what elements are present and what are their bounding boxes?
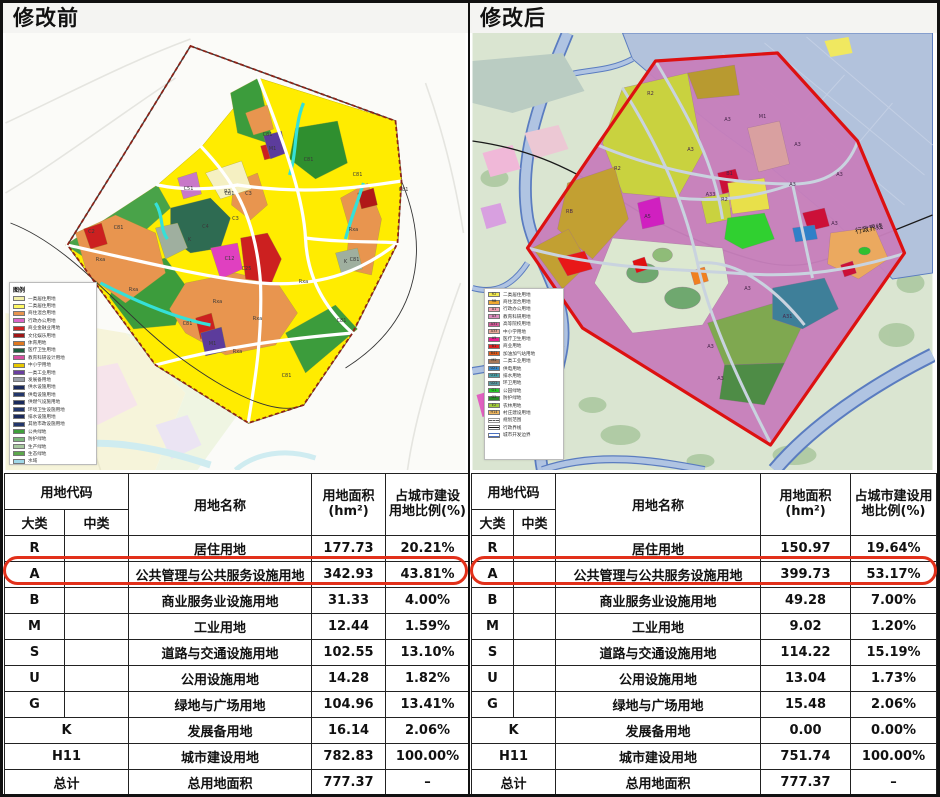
table-row: B商业服务业设施用地49.287.00% xyxy=(472,588,937,614)
cell-major: S xyxy=(472,640,514,666)
cell-name: 商业服务业设施用地 xyxy=(129,588,312,614)
legend-swatch: B1 xyxy=(488,344,500,349)
cell-ratio: 4.00% xyxy=(386,588,470,614)
cell-ratio: 1.59% xyxy=(386,614,470,640)
table-row: R居住用地177.7320.21% xyxy=(5,536,470,562)
table-row: G绿地与广场用地15.482.06% xyxy=(472,692,937,718)
legend-swatch: H14 xyxy=(488,410,500,415)
parcel-label: C81 xyxy=(183,321,193,327)
legend-item: 环境卫生设施用地 xyxy=(13,406,93,413)
cell-major: M xyxy=(472,614,514,640)
cell-area: 751.74 xyxy=(761,744,851,770)
legend-item: 供电设施用地 xyxy=(13,391,93,398)
cell-code: 总计 xyxy=(5,770,129,795)
cell-ratio: 15.19% xyxy=(851,640,937,666)
parcel-label: C2 xyxy=(88,229,95,235)
cell-minor xyxy=(514,562,556,588)
cell-code: K xyxy=(472,718,556,744)
parcel-label: C81 xyxy=(399,187,409,193)
cell-minor xyxy=(65,614,129,640)
legend-swatch: A5 xyxy=(488,337,500,342)
legend-label: 二类工业用地 xyxy=(503,358,531,364)
before-landuse-table: 用地代码 用地名称 用地面积 (hm²) 占城市建设 用地比例(%) 大类 中类… xyxy=(4,473,470,794)
legend-label: 发展备用地 xyxy=(28,377,51,383)
legend-label: 一类居住用地 xyxy=(28,296,56,302)
legend-item: A1行政办公用地 xyxy=(488,306,560,313)
parcel-label: A31 xyxy=(783,314,793,320)
legend-item: 水域 xyxy=(13,458,93,465)
col-header-major: 大类 xyxy=(472,510,514,536)
legend-item: A3教育科研用地 xyxy=(488,313,560,320)
legend-swatch xyxy=(13,385,25,390)
table-row: M工业用地9.021.20% xyxy=(472,614,937,640)
legend-swatch xyxy=(13,400,25,405)
cell-name: 公共管理与公共服务设施用地 xyxy=(129,562,312,588)
cell-major: R xyxy=(472,536,514,562)
cell-minor xyxy=(65,692,129,718)
legend-label: 行政界线 xyxy=(503,425,521,431)
parcel-label: B1 xyxy=(726,171,733,177)
legend-swatch xyxy=(13,304,25,309)
cell-ratio: 2.06% xyxy=(386,718,470,744)
cell-major: A xyxy=(5,562,65,588)
cell-ratio: 0.00% xyxy=(851,718,937,744)
after-landuse-table-wrap: 用地代码 用地名称 用地面积(hm²) 占城市建设用 地比例(%) 大类 中类 … xyxy=(471,473,936,794)
col-header-area: 用地面积(hm²) xyxy=(761,474,851,536)
table-row: H11城市建设用地751.74100.00% xyxy=(472,744,937,770)
parcel-label: R2 xyxy=(647,91,654,97)
parcel-label: C81 xyxy=(337,318,347,324)
cell-area: 777.37 xyxy=(761,770,851,795)
cell-area: 114.22 xyxy=(761,640,851,666)
cell-name: 工业用地 xyxy=(556,614,761,640)
parcel-label: RB xyxy=(566,209,573,215)
legend-swatch: RB xyxy=(488,300,500,305)
cell-ratio: 1.20% xyxy=(851,614,937,640)
cell-major: S xyxy=(5,640,65,666)
table-row: A公共管理与公共服务设施用地399.7353.17% xyxy=(472,562,937,588)
cell-area: 342.93 xyxy=(312,562,386,588)
legend-swatch xyxy=(13,414,25,419)
cell-area: 102.55 xyxy=(312,640,386,666)
legend-item: 生产绿地 xyxy=(13,443,93,450)
legend-label: 供电设施用地 xyxy=(28,392,56,398)
legend-label: 医疗卫生用地 xyxy=(503,336,531,342)
legend-label: 一类工业用地 xyxy=(28,370,56,376)
table-row: G绿地与广场用地104.9613.41% xyxy=(5,692,470,718)
cell-code: H11 xyxy=(5,744,129,770)
legend-label: 排水设施用地 xyxy=(28,414,56,420)
parcel-label: R2 xyxy=(224,189,231,195)
table-row: K发展备用地0.000.00% xyxy=(472,718,937,744)
col-header-minor: 中类 xyxy=(65,510,129,536)
parcel-label: C81 xyxy=(350,257,360,263)
cell-ratio: 53.17% xyxy=(851,562,937,588)
legend-label: 水域 xyxy=(28,458,37,464)
cell-minor xyxy=(514,666,556,692)
legend-swatch xyxy=(13,459,25,464)
parcel-label: A3 xyxy=(724,117,731,123)
legend-label: 环境卫生设施用地 xyxy=(28,407,65,413)
cell-code: H11 xyxy=(472,744,556,770)
legend-rows: R2二类居住用地RB商住混合用地A1行政办公用地A3教育科研用地A31高等院校用… xyxy=(488,291,560,439)
cell-ratio: 19.64% xyxy=(851,536,937,562)
cell-ratio: 13.41% xyxy=(386,692,470,718)
legend-item: 中小学用地 xyxy=(13,362,93,369)
legend-label: 行政办公用地 xyxy=(28,318,56,324)
before-landuse-map: C81C81C81C81C81C81C81C81C81C81RxaRxaRxaR… xyxy=(3,33,468,470)
parcel-label: C81 xyxy=(114,225,124,231)
legend-label: 其他市政设施用地 xyxy=(28,421,65,427)
cell-area: 0.00 xyxy=(761,718,851,744)
parcel-label: C81 xyxy=(282,373,292,379)
cell-area: 15.48 xyxy=(761,692,851,718)
legend-item: U15排水用地 xyxy=(488,372,560,379)
legend-label: 商业金融业用地 xyxy=(28,325,60,331)
cell-name: 发展备用地 xyxy=(129,718,312,744)
parcel-label: A3 xyxy=(789,182,796,188)
parcel-label: A3 xyxy=(707,344,714,350)
panel-after-title: 修改后 xyxy=(470,3,937,33)
legend-label: 环卫用地 xyxy=(503,380,521,386)
cell-major: R xyxy=(5,536,65,562)
legend-item: 规划范围 xyxy=(488,417,560,424)
legend-label: 二类居住用地 xyxy=(28,303,56,309)
panel-after: 修改后 xyxy=(470,3,937,794)
legend-label: 防护绿地 xyxy=(503,395,521,401)
legend-item: 排水设施用地 xyxy=(13,413,93,420)
legend-swatch xyxy=(13,451,25,456)
cell-name: 道路与交通设施用地 xyxy=(556,640,761,666)
legend-swatch xyxy=(13,392,25,397)
cell-name: 商业服务业设施用地 xyxy=(556,588,761,614)
legend-swatch xyxy=(13,326,25,331)
legend-swatch xyxy=(13,333,25,338)
legend-item: 防护绿地 xyxy=(13,435,93,442)
parcel-label: C12 xyxy=(225,256,235,262)
legend-swatch: R2 xyxy=(488,292,500,297)
legend-label: 加油加气站用地 xyxy=(503,351,535,357)
cell-area: 13.04 xyxy=(761,666,851,692)
cell-area: 177.73 xyxy=(312,536,386,562)
legend-swatch xyxy=(13,311,25,316)
col-header-minor: 中类 xyxy=(514,510,556,536)
parcel-label: A33 xyxy=(706,192,716,198)
cell-minor xyxy=(65,536,129,562)
legend-swatch: U22 xyxy=(488,381,500,386)
legend-item: 体育用地 xyxy=(13,339,93,346)
col-header-ratio: 占城市建设用 地比例(%) xyxy=(851,474,937,536)
cell-minor xyxy=(514,640,556,666)
legend-item: U22环卫用地 xyxy=(488,380,560,387)
table-row: 总计总用地面积777.37– xyxy=(5,770,470,795)
parcel-label: A3 xyxy=(687,147,694,153)
legend-swatch xyxy=(13,437,25,442)
cell-name: 总用地面积 xyxy=(556,770,761,795)
table-row: K发展备用地16.142.06% xyxy=(5,718,470,744)
cell-ratio: 1.82% xyxy=(386,666,470,692)
cell-name: 公用设施用地 xyxy=(556,666,761,692)
parcel-label: Rxa xyxy=(253,316,263,322)
legend-label: 供水设施用地 xyxy=(28,384,56,390)
parcel-label: R2 xyxy=(614,166,621,172)
legend-item: 一类工业用地 xyxy=(13,369,93,376)
legend-title: 图例 xyxy=(13,285,93,294)
table-row: H11城市建设用地782.83100.00% xyxy=(5,744,470,770)
legend-item: A33中小学用地 xyxy=(488,328,560,335)
legend-swatch xyxy=(13,422,25,427)
legend-item: 商业金融业用地 xyxy=(13,325,93,332)
legend-swatch: A1 xyxy=(488,307,500,312)
col-header-code: 用地代码 xyxy=(472,474,556,510)
cell-name: 总用地面积 xyxy=(129,770,312,795)
legend-swatch: M2 xyxy=(488,359,500,364)
legend-swatch xyxy=(488,418,500,423)
legend-item: B1商业用地 xyxy=(488,343,560,350)
cell-area: 16.14 xyxy=(312,718,386,744)
legend-item: 文化娱乐用地 xyxy=(13,332,93,339)
cell-ratio: – xyxy=(386,770,470,795)
cell-name: 绿地与广场用地 xyxy=(556,692,761,718)
before-map-legend: 图例 一类居住用地二类居住用地商住混合用地行政办公用地商业金融业用地文化娱乐用地… xyxy=(9,282,97,465)
after-landuse-map: A3A3A3A3A3A3A3A3A3R2R2R2M1B1A33A5A31RB 行… xyxy=(470,33,937,470)
legend-swatch: B41 xyxy=(488,351,500,356)
cell-minor xyxy=(514,536,556,562)
cell-name: 城市建设用地 xyxy=(556,744,761,770)
legend-item: 供燃气设施用地 xyxy=(13,398,93,405)
cell-name: 工业用地 xyxy=(129,614,312,640)
legend-label: 商住混合用地 xyxy=(28,310,56,316)
cell-major: A xyxy=(472,562,514,588)
legend-swatch xyxy=(13,296,25,301)
legend-swatch xyxy=(13,444,25,449)
cell-name: 居住用地 xyxy=(556,536,761,562)
parcel-label: M1 xyxy=(759,114,767,120)
legend-item: 教育科研设计用地 xyxy=(13,354,93,361)
table-row: 总计总用地面积777.37– xyxy=(472,770,937,795)
cell-area: 49.28 xyxy=(761,588,851,614)
legend-item: 行政办公用地 xyxy=(13,317,93,324)
panel-before: 修改前 xyxy=(3,3,470,794)
legend-label: 中小学用地 xyxy=(28,362,51,368)
cell-ratio: – xyxy=(851,770,937,795)
col-header-ratio: 占城市建设 用地比例(%) xyxy=(386,474,470,536)
after-landuse-table: 用地代码 用地名称 用地面积(hm²) 占城市建设用 地比例(%) 大类 中类 … xyxy=(471,473,937,794)
legend-item: R2二类居住用地 xyxy=(488,291,560,298)
parcel-label: C4 xyxy=(202,224,209,230)
cell-name: 居住用地 xyxy=(129,536,312,562)
legend-label: 教育科研设计用地 xyxy=(28,355,65,361)
legend-item: 发展备用地 xyxy=(13,376,93,383)
legend-item: A31高等院校用地 xyxy=(488,321,560,328)
cell-minor xyxy=(65,588,129,614)
parcel-label: C81 xyxy=(353,172,363,178)
legend-swatch: U21 xyxy=(488,366,500,371)
cell-name: 发展备用地 xyxy=(556,718,761,744)
legend-item: H14村庄建设用地 xyxy=(488,409,560,416)
legend-swatch xyxy=(13,363,25,368)
legend-item: M2二类工业用地 xyxy=(488,358,560,365)
cell-name: 城市建设用地 xyxy=(129,744,312,770)
cell-name: 公用设施用地 xyxy=(129,666,312,692)
legend-swatch xyxy=(13,348,25,353)
cell-major: G xyxy=(472,692,514,718)
parcel-label: Rxa xyxy=(349,227,359,233)
legend-item: 生态绿地 xyxy=(13,450,93,457)
cell-ratio: 20.21% xyxy=(386,536,470,562)
legend-item: U21供电用地 xyxy=(488,365,560,372)
panel-before-title: 修改前 xyxy=(3,3,468,33)
parcel-label: A3 xyxy=(836,172,843,178)
table-row: A公共管理与公共服务设施用地342.9343.81% xyxy=(5,562,470,588)
legend-item: E2农林用地 xyxy=(488,402,560,409)
legend-item: 供水设施用地 xyxy=(13,384,93,391)
parcel-label: Rxa xyxy=(129,287,139,293)
parcel-label: Rxa xyxy=(299,279,309,285)
table-row: B商业服务业设施用地31.334.00% xyxy=(5,588,470,614)
legend-swatch: U15 xyxy=(488,373,500,378)
legend-label: 供电用地 xyxy=(503,366,521,372)
cell-minor xyxy=(514,614,556,640)
legend-item: A5医疗卫生用地 xyxy=(488,335,560,342)
before-after-comparison-figure: 修改前 xyxy=(0,0,940,797)
parcel-label: Rxa xyxy=(233,349,243,355)
legend-swatch xyxy=(488,433,500,438)
cell-major: B xyxy=(472,588,514,614)
parcel-label: A3 xyxy=(831,221,838,227)
legend-label: 医疗卫生用地 xyxy=(28,347,56,353)
legend-item: 商住混合用地 xyxy=(13,310,93,317)
cell-minor xyxy=(65,562,129,588)
col-header-area: 用地面积 (hm²) xyxy=(312,474,386,536)
table-row: S道路与交通设施用地102.5513.10% xyxy=(5,640,470,666)
parcel-label: C51 xyxy=(184,186,194,192)
legend-swatch: E2 xyxy=(488,403,500,408)
cell-major: U xyxy=(5,666,65,692)
table-row: U公用设施用地13.041.73% xyxy=(472,666,937,692)
cell-minor xyxy=(514,692,556,718)
legend-swatch xyxy=(13,407,25,412)
parcel-label: A3 xyxy=(744,286,751,292)
legend-item: G1公园绿地 xyxy=(488,387,560,394)
legend-label: 农林用地 xyxy=(503,403,521,409)
col-header-name: 用地名称 xyxy=(556,474,761,536)
legend-rows: 一类居住用地二类居住用地商住混合用地行政办公用地商业金融业用地文化娱乐用地体育用… xyxy=(13,295,93,465)
legend-label: 供燃气设施用地 xyxy=(28,399,60,405)
cell-area: 777.37 xyxy=(312,770,386,795)
parcel-label: Rxa xyxy=(96,257,106,263)
cell-major: G xyxy=(5,692,65,718)
legend-label: 行政办公用地 xyxy=(503,306,531,312)
legend-label: 生态绿地 xyxy=(28,451,46,457)
legend-swatch xyxy=(13,341,25,346)
legend-label: 教育科研用地 xyxy=(503,314,531,320)
col-header-name: 用地名称 xyxy=(129,474,312,536)
cell-major: U xyxy=(472,666,514,692)
cell-name: 道路与交通设施用地 xyxy=(129,640,312,666)
cell-major: M xyxy=(5,614,65,640)
after-map-legend: R2二类居住用地RB商住混合用地A1行政办公用地A3教育科研用地A31高等院校用… xyxy=(484,288,564,460)
table-row: S道路与交通设施用地114.2215.19% xyxy=(472,640,937,666)
cell-area: 104.96 xyxy=(312,692,386,718)
parcel-label: Rxa xyxy=(213,299,223,305)
legend-item: 医疗卫生用地 xyxy=(13,347,93,354)
cell-name: 绿地与广场用地 xyxy=(129,692,312,718)
cell-area: 399.73 xyxy=(761,562,851,588)
cell-area: 31.33 xyxy=(312,588,386,614)
legend-label: 防护绿地 xyxy=(28,436,46,442)
legend-label: 公共绿地 xyxy=(28,429,46,435)
cell-code: K xyxy=(5,718,129,744)
cell-ratio: 1.73% xyxy=(851,666,937,692)
legend-item: 城市开发边界 xyxy=(488,431,560,438)
legend-swatch xyxy=(13,377,25,382)
parcel-label: A5 xyxy=(644,214,651,220)
legend-item: G2防护绿地 xyxy=(488,394,560,401)
legend-item: RB商住混合用地 xyxy=(488,298,560,305)
cell-area: 782.83 xyxy=(312,744,386,770)
cell-area: 14.28 xyxy=(312,666,386,692)
legend-label: 中小学用地 xyxy=(503,329,526,335)
legend-swatch: A31 xyxy=(488,322,500,327)
legend-item: 其他市政设施用地 xyxy=(13,421,93,428)
legend-label: 高等院校用地 xyxy=(503,321,531,327)
legend-item: 行政界线 xyxy=(488,424,560,431)
legend-label: 二类居住用地 xyxy=(503,292,531,298)
legend-swatch xyxy=(13,318,25,323)
cell-area: 9.02 xyxy=(761,614,851,640)
parcel-label: A3 xyxy=(794,142,801,148)
legend-label: 体育用地 xyxy=(28,340,46,346)
legend-label: 排水用地 xyxy=(503,373,521,379)
parcel-label: C81 xyxy=(304,157,314,163)
table-row: R居住用地150.9719.64% xyxy=(472,536,937,562)
parcel-label: C81 xyxy=(263,132,273,138)
legend-label: 规划范围 xyxy=(503,417,521,423)
legend-label: 生产绿地 xyxy=(28,444,46,450)
legend-swatch: A33 xyxy=(488,329,500,334)
parcel-label: A3 xyxy=(717,376,724,382)
legend-label: 文化娱乐用地 xyxy=(28,333,56,339)
legend-label: 城市开发边界 xyxy=(503,432,531,438)
col-header-code: 用地代码 xyxy=(5,474,129,510)
cell-major: B xyxy=(5,588,65,614)
legend-item: 二类居住用地 xyxy=(13,302,93,309)
parcel-label: M1 xyxy=(209,341,217,347)
parcel-label: C3 xyxy=(245,191,252,197)
cell-ratio: 43.81% xyxy=(386,562,470,588)
cell-ratio: 13.10% xyxy=(386,640,470,666)
parcel-label: C3 xyxy=(232,216,239,222)
col-header-major: 大类 xyxy=(5,510,65,536)
cell-name: 公共管理与公共服务设施用地 xyxy=(556,562,761,588)
cell-minor xyxy=(65,666,129,692)
cell-minor xyxy=(514,588,556,614)
table-row: M工业用地12.441.59% xyxy=(5,614,470,640)
legend-swatch: G2 xyxy=(488,396,500,401)
before-landuse-table-wrap: 用地代码 用地名称 用地面积 (hm²) 占城市建设 用地比例(%) 大类 中类… xyxy=(4,473,467,794)
legend-swatch: A3 xyxy=(488,314,500,319)
cell-ratio: 100.00% xyxy=(851,744,937,770)
parcel-label: R2 xyxy=(721,197,728,203)
legend-swatch xyxy=(13,355,25,360)
legend-item: 公共绿地 xyxy=(13,428,93,435)
legend-swatch xyxy=(13,429,25,434)
cell-area: 150.97 xyxy=(761,536,851,562)
cell-area: 12.44 xyxy=(312,614,386,640)
cell-ratio: 7.00% xyxy=(851,588,937,614)
parcel-label: C25 xyxy=(242,266,252,272)
